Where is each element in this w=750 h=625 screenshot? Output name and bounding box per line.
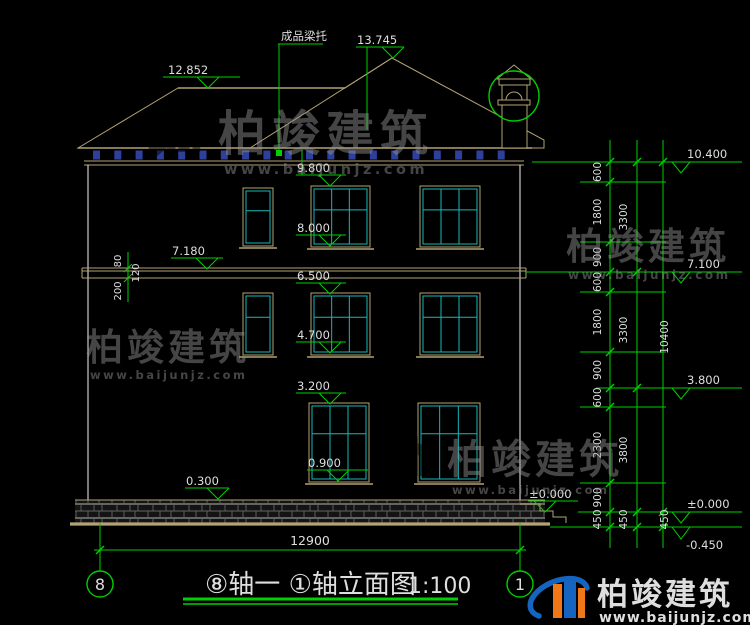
dim-label: 450 (618, 509, 630, 529)
watermark-brand: 柏竣建筑 (218, 106, 434, 162)
roof-note-label: 成品梁托 (281, 29, 327, 43)
dim-label: 600 (592, 162, 604, 182)
elevation-marker-triangle (196, 258, 218, 269)
watermark-center-low: 柏竣建筑 www.baijunjz.com (383, 436, 623, 497)
elevation-marker-f2_head: 6.500 (297, 269, 330, 283)
footer-url: www.baijunjz.com (599, 610, 750, 625)
dim-label: 1800 (592, 199, 604, 226)
watermark-logo-icon (148, 105, 201, 158)
eave-corbel (93, 151, 100, 160)
watermark-url: www.baijunjz.com (224, 162, 428, 178)
logo-building-icon (578, 588, 585, 618)
eave-corbel (114, 151, 121, 160)
elevation-marker-ridge_main: 12.852 (168, 63, 208, 77)
elevation-marker-f1_head: 3.200 (297, 379, 330, 393)
chimney-pediment (497, 65, 531, 79)
watermark-right-middle: 柏竣建筑 www.baijunjz.com (566, 225, 731, 282)
eave-corbel (455, 151, 462, 160)
elevation-marker-plinth: 0.300 (186, 474, 219, 488)
title-block: ⑧轴一 ①轴立面图 1:100 (183, 570, 471, 604)
elevation-marker-triangle (207, 488, 229, 499)
footer-brand: 柏竣建筑 (597, 577, 733, 613)
chimney (489, 65, 539, 148)
elevation-drawing: 成品梁托 80 120 200 12900 8 1 ⑧轴一 ①轴立面图 1:10… (0, 0, 750, 625)
logo-building-icon (553, 584, 562, 618)
elevation-marker-triangle (672, 162, 690, 173)
window-frame (243, 188, 273, 246)
dim-label: 450 (592, 509, 604, 529)
elevation-marker-right_ground: -0.450 (686, 538, 723, 552)
window-frame (311, 186, 370, 247)
window-glazing (246, 191, 270, 243)
dim-label: 10400 (659, 320, 671, 353)
elevation-marker-right_zero: ±0.000 (687, 497, 730, 511)
belt-dimensions: 80 120 200 (113, 252, 142, 302)
watermark-brand: 柏竣建筑 (86, 326, 250, 369)
logo-building-icon (564, 577, 576, 618)
eave-corbel (498, 151, 505, 160)
elevation-marker-f1_sill: 0.900 (308, 456, 341, 470)
watermark-brand: 柏竣建筑 (566, 225, 730, 268)
dim-label: 3300 (618, 317, 630, 344)
window-frame (420, 293, 480, 355)
elevation-marker-triangle (672, 388, 690, 399)
dim-label: 900 (592, 360, 604, 380)
chimney-cornice (498, 100, 530, 105)
window-glazing (314, 296, 367, 352)
watermark-brand: 柏竣建筑 (447, 437, 623, 483)
elevation-marker-triangle (319, 393, 341, 404)
elevation-marker-ridge_high: 13.745 (357, 33, 397, 47)
eave-corbel (136, 151, 143, 160)
dim-label-total-width: 12900 (290, 533, 330, 548)
dim-label: 1800 (592, 309, 604, 336)
window-frame (311, 293, 370, 355)
elevation-marker-right_f2: 3.800 (687, 373, 720, 387)
dim-label: 80 (113, 255, 124, 268)
elevation-marker-f3_sill: 8.000 (297, 221, 330, 235)
elevation-marker-belt: 7.180 (172, 244, 205, 258)
footer-logo: 柏竣建筑 www.baijunjz.com (530, 577, 750, 625)
watermark-left-middle: 柏竣建筑 www.baijunjz.com (27, 324, 250, 383)
watermark-url: www.baijunjz.com (452, 483, 609, 497)
axis-bubble-left-label: 8 (95, 575, 105, 594)
watermark-url: www.baijunjz.com (90, 368, 247, 382)
watermark-top-center: 柏竣建筑 www.baijunjz.com (148, 105, 434, 179)
elevation-marker-f2_sill: 4.700 (297, 328, 330, 342)
elevation-marker-triangle (382, 47, 404, 58)
elevation-marker-triangle (319, 342, 341, 353)
window-glazing (423, 296, 477, 352)
dim-label: 600 (592, 387, 604, 407)
elevation-marker-right_top: 10.400 (687, 147, 727, 161)
plinth-masonry (75, 500, 545, 523)
axis-bubble-right-label: 1 (515, 575, 525, 594)
drawing-title: ⑧轴一 ①轴立面图 (205, 570, 416, 600)
dim-label: 200 (113, 281, 124, 300)
eave-corbel (200, 151, 207, 160)
elevation-marker-triangle (672, 512, 690, 523)
elevation-marker-triangle (319, 283, 341, 294)
chimney-entablature (499, 79, 530, 85)
watermark-url: www.baijunjz.com (568, 268, 731, 282)
eave-corbel (476, 151, 483, 160)
base (70, 500, 566, 524)
window-glazing (423, 189, 477, 244)
eave-corbel (434, 151, 441, 160)
window-frame (420, 186, 480, 247)
elevation-marker-triangle (197, 77, 219, 88)
drawing-scale: 1:100 (408, 574, 471, 599)
dim-label: 120 (131, 263, 142, 282)
watermark-logo-icon (27, 324, 69, 366)
